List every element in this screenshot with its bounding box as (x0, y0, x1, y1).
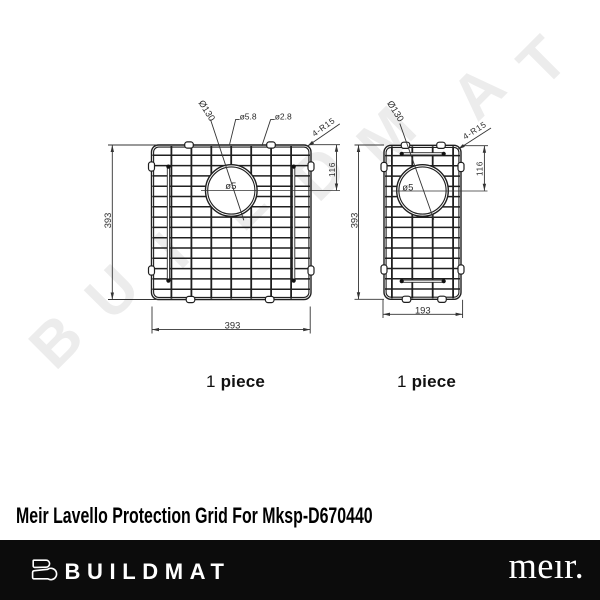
svg-text:ø5: ø5 (225, 181, 236, 192)
svg-text:393: 393 (225, 320, 241, 331)
svg-text:393: 393 (102, 213, 113, 229)
svg-text:Ø130: Ø130 (197, 98, 218, 123)
svg-text:ø5.8: ø5.8 (240, 111, 257, 121)
svg-text:393: 393 (349, 213, 360, 229)
svg-text:ø2.8: ø2.8 (275, 112, 292, 122)
svg-text:193: 193 (415, 305, 431, 316)
svg-text:116: 116 (476, 161, 485, 176)
svg-text:ø5: ø5 (402, 182, 413, 193)
svg-text:Ø130: Ø130 (385, 99, 406, 124)
svg-text:116: 116 (328, 162, 337, 177)
